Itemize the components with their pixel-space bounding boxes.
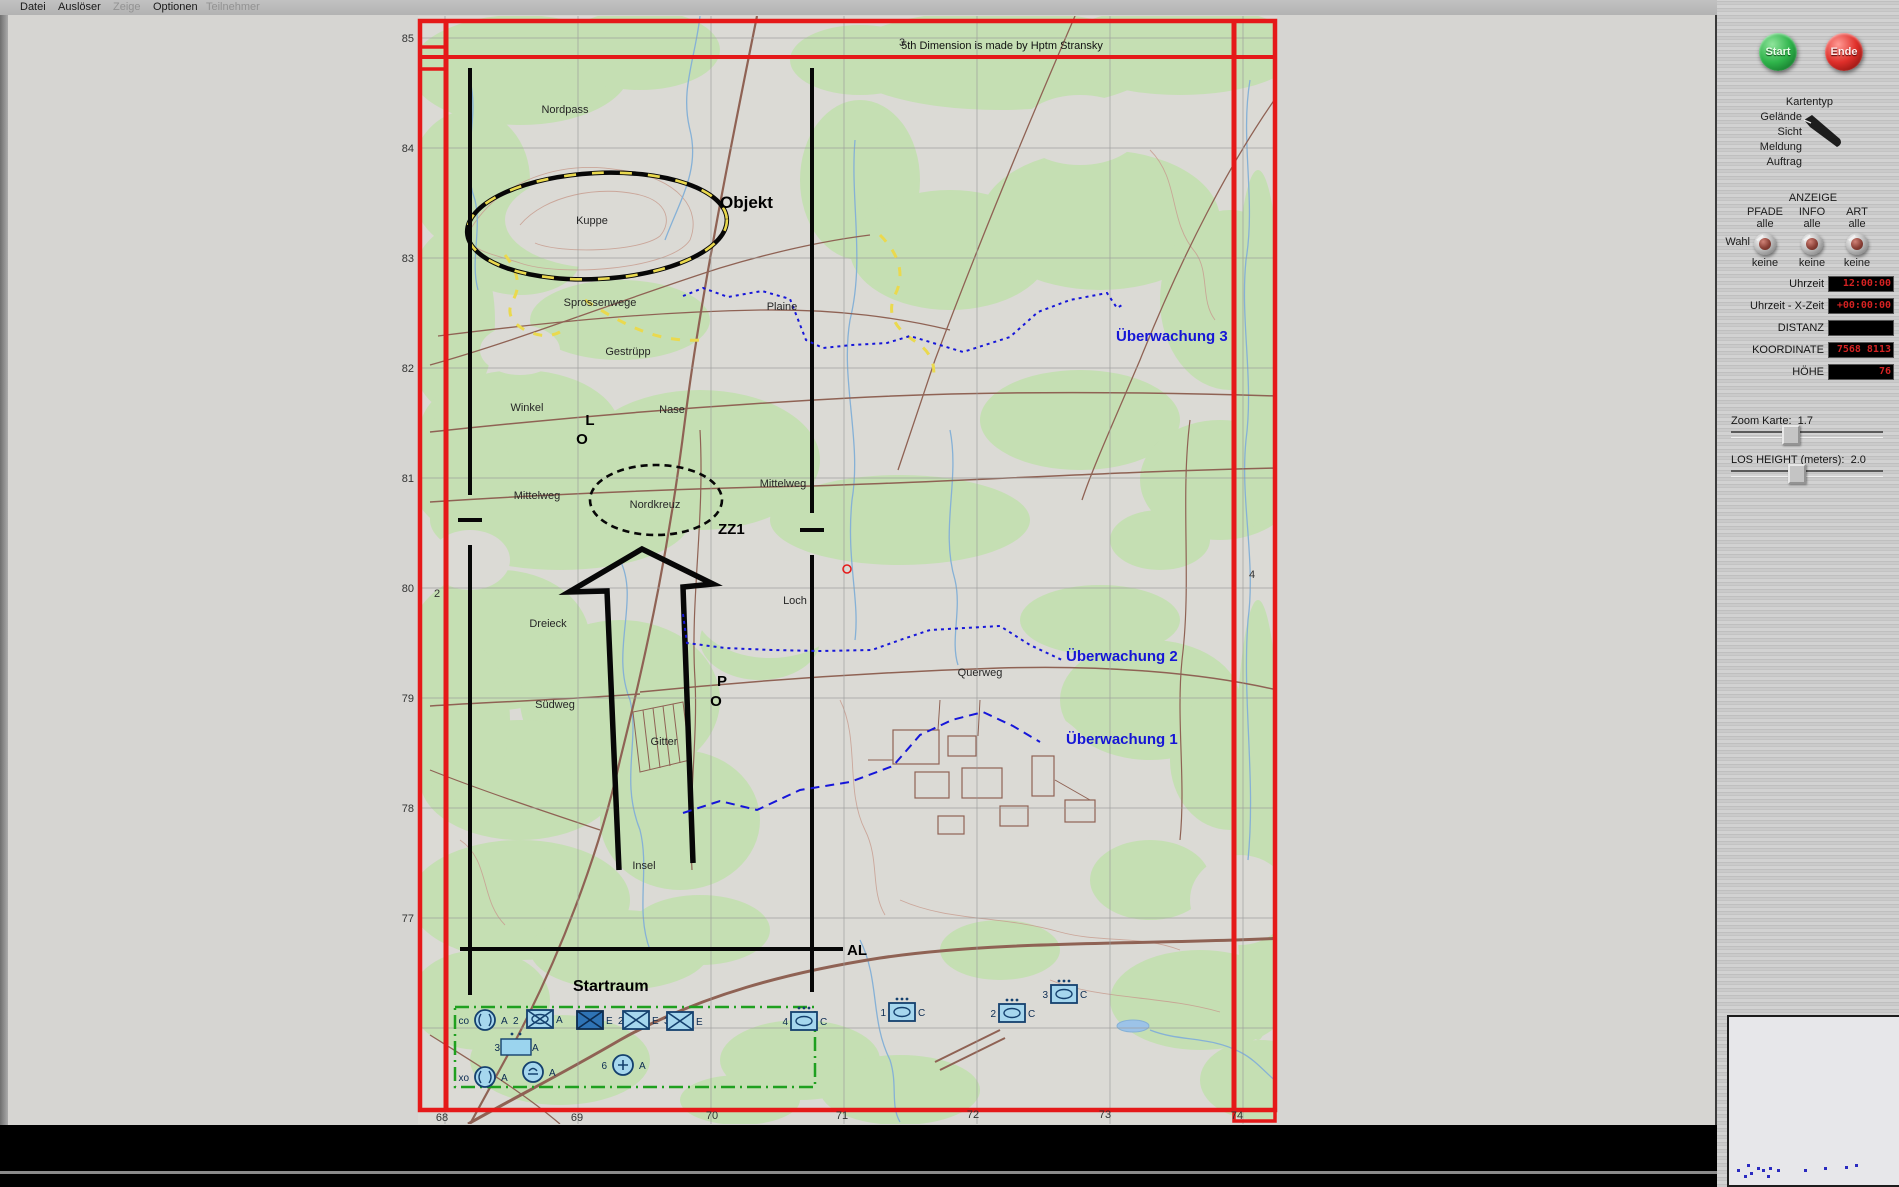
- info-knob[interactable]: [1801, 233, 1823, 255]
- map-label: Startraum: [573, 978, 649, 995]
- desktop: DateiAuslöserZeigeOptionenTeilnehmer: [0, 0, 1899, 1187]
- minimap-unit-dot: [1845, 1166, 1848, 1169]
- map-label: 72: [967, 1109, 979, 1121]
- art-knob-group: ART alle keine: [1832, 206, 1882, 269]
- map-label: 69: [571, 1112, 583, 1124]
- minimap-unit-dot: [1747, 1164, 1750, 1167]
- hoehe-row: HÖHE 76: [1717, 365, 1899, 379]
- unit-label: 3: [1042, 990, 1048, 1001]
- map-label: 82: [402, 363, 414, 375]
- art-keine-label: keine: [1844, 257, 1870, 269]
- distanz-label: DISTANZ: [1717, 322, 1824, 334]
- unit-label: C: [1028, 1009, 1035, 1020]
- map-label: L: [585, 412, 594, 429]
- map-label: P: [717, 673, 727, 690]
- map-label: 71: [836, 1110, 848, 1122]
- minimap-unit-dot: [1804, 1169, 1807, 1172]
- slider-section: Zoom Karte: 1.7 LOS HEIGHT (meters): 2.0: [1731, 415, 1887, 493]
- minimap-unit-dot: [1737, 1169, 1740, 1172]
- minimap-unit-dot: [1769, 1167, 1772, 1170]
- unit-label: 2: [513, 1016, 519, 1027]
- wahl-label: Wahl: [1725, 236, 1750, 248]
- minimap-unit-dot: [1824, 1167, 1827, 1170]
- menu-item-zeige: Zeige: [113, 1, 141, 13]
- unit-label: co: [458, 1016, 469, 1027]
- map-label: Mittelweg: [514, 490, 560, 502]
- minimap-unit-dot: [1750, 1172, 1753, 1175]
- distanz-display: [1828, 320, 1894, 336]
- koordinate-row: KOORDINATE 7568 8113: [1717, 343, 1899, 357]
- unit-label: A: [549, 1068, 556, 1079]
- info-label: INFO: [1787, 206, 1837, 218]
- map-label: Überwachung 1: [1066, 731, 1178, 748]
- map-label: Überwachung 3: [1116, 328, 1228, 345]
- map-label: Insel: [632, 860, 655, 872]
- unit-label: 2: [990, 1009, 996, 1020]
- lake: [1117, 1020, 1149, 1032]
- art-knob[interactable]: [1846, 233, 1868, 255]
- unit-label: C: [918, 1008, 925, 1019]
- unit-label: 1: [880, 1008, 886, 1019]
- anzeige-title: ANZEIGE: [1763, 192, 1863, 204]
- map-label: Überwachung 2: [1066, 648, 1178, 665]
- kartentyp-title: Kartentyp: [1786, 96, 1833, 108]
- map-label: 74: [1231, 1110, 1243, 1122]
- minimap-unit-dot: [1757, 1167, 1760, 1170]
- start-button[interactable]: Start: [1759, 33, 1797, 71]
- minimap-unit-dot: [1855, 1164, 1858, 1167]
- status-black-bar: [0, 1174, 1717, 1187]
- unit-label: C: [820, 1017, 827, 1028]
- map-label: Gestrüpp: [605, 346, 650, 358]
- zoom-karte-slider[interactable]: [1731, 431, 1883, 438]
- unit-label: A: [532, 1043, 539, 1054]
- pfade-label: PFADE: [1740, 206, 1790, 218]
- los-height-label: LOS HEIGHT (meters): 2.0: [1731, 454, 1887, 466]
- map-label: 3: [899, 37, 905, 49]
- art-label: ART: [1832, 206, 1882, 218]
- minimap-unit-dot: [1767, 1175, 1770, 1178]
- info-knob-group: INFO alle keine: [1787, 206, 1837, 269]
- pen-pointer-icon: [1802, 113, 1844, 155]
- tactical-map[interactable]: coA2AE2E3E4C3AxoAA6A1C2C3C 5th Dimension…: [0, 15, 1715, 1125]
- map-label: Nordkreuz: [630, 499, 681, 511]
- unit-label: 6: [601, 1061, 607, 1072]
- unit-label: xo: [458, 1073, 469, 1084]
- hoehe-label: HÖHE: [1717, 366, 1824, 378]
- menu-item-optionen[interactable]: Optionen: [153, 1, 198, 13]
- map-label: Dreieck: [529, 618, 567, 630]
- map-label: 2: [434, 588, 440, 600]
- map-label: Südweg: [535, 699, 575, 711]
- unit-label: A: [556, 1015, 563, 1026]
- menu-item-auslöser[interactable]: Auslöser: [58, 1, 101, 13]
- map-label: 4: [1249, 569, 1255, 581]
- kartentyp-option-meldung[interactable]: Meldung: [1760, 140, 1802, 155]
- map-label: 83: [402, 253, 414, 265]
- unit-label: C: [1080, 990, 1087, 1001]
- map-label: Sprossenwege: [564, 297, 637, 309]
- pfade-alle-label: alle: [1740, 218, 1790, 230]
- bottom-black-bar: [0, 1125, 1717, 1171]
- kartentyp-option-auftrag[interactable]: Auftrag: [1760, 155, 1802, 170]
- map-label: 77: [402, 913, 414, 925]
- xzeit-display: +00:00:00: [1828, 298, 1894, 314]
- uhrzeit-display: 12:00:00: [1828, 276, 1894, 292]
- los-height-slider-handle[interactable]: [1788, 464, 1806, 484]
- minimap-unit-dot: [1762, 1169, 1765, 1172]
- unit-label: A: [639, 1061, 646, 1072]
- minimap-unit-dot: [1744, 1175, 1747, 1178]
- control-sidebar: Start Ende Kartentyp Gelände Sicht Meldu…: [1717, 0, 1899, 1187]
- hoehe-display: 76: [1828, 364, 1894, 380]
- map-label: Nordpass: [541, 104, 589, 116]
- zoom-karte-slider-handle[interactable]: [1782, 425, 1800, 445]
- map-label: Kuppe: [576, 215, 608, 227]
- kartentyp-option-sicht[interactable]: Sicht: [1760, 125, 1802, 140]
- map-label: O: [710, 693, 722, 710]
- overview-minimap[interactable]: [1727, 1015, 1899, 1187]
- unit-label: A: [501, 1073, 508, 1084]
- los-height-slider[interactable]: [1731, 470, 1883, 477]
- menu-item-teilnehmer: Teilnehmer: [206, 1, 260, 13]
- map-label: Objekt: [720, 193, 773, 212]
- unit-label: 3: [494, 1043, 500, 1054]
- unit-label: E: [606, 1016, 613, 1027]
- zoom-karte-label: Zoom Karte: 1.7: [1731, 415, 1887, 427]
- menu-bar: DateiAuslöserZeigeOptionenTeilnehmer: [0, 0, 1717, 16]
- map-label: 5th Dimension is made by Hptm Stransky: [901, 40, 1103, 52]
- map-label: Nase: [659, 404, 685, 416]
- digital-displays: Uhrzeit 12:00:00 Uhrzeit - X-Zeit +00:00…: [1717, 277, 1899, 387]
- art-alle-label: alle: [1832, 218, 1882, 230]
- unit-label: E: [696, 1017, 703, 1028]
- map-label: 84: [402, 143, 414, 155]
- end-button[interactable]: Ende: [1825, 33, 1863, 71]
- map-label: 73: [1099, 1109, 1111, 1121]
- info-alle-label: alle: [1787, 218, 1837, 230]
- map-label: Winkel: [510, 402, 543, 414]
- xzeit-label: Uhrzeit - X-Zeit: [1717, 300, 1824, 312]
- menu-item-datei[interactable]: Datei: [20, 1, 46, 13]
- map-label: 70: [706, 1110, 718, 1122]
- map-label: Loch: [783, 595, 807, 607]
- minimap-unit-dot: [1777, 1169, 1780, 1172]
- unit-label: A: [501, 1016, 508, 1027]
- los-height-value: 2.0: [1851, 454, 1866, 466]
- map-label: 79: [402, 693, 414, 705]
- map-label: 78: [402, 803, 414, 815]
- map-label: Plaine: [767, 301, 798, 313]
- pfade-keine-label: keine: [1752, 257, 1778, 269]
- map-label: 85: [402, 33, 414, 45]
- koordinate-label: KOORDINATE: [1717, 344, 1824, 356]
- distanz-row: DISTANZ: [1717, 321, 1899, 335]
- uhrzeit-row: Uhrzeit 12:00:00: [1717, 277, 1899, 291]
- map-label: ZZ1: [718, 521, 745, 538]
- map-label: O: [576, 431, 588, 448]
- map-label: Gitter: [651, 736, 678, 748]
- kartentyp-option-gelaende[interactable]: Gelände: [1760, 110, 1802, 125]
- map-label: AL: [847, 942, 867, 959]
- unit-label: E: [652, 1016, 659, 1027]
- map-label: 68: [436, 1112, 448, 1124]
- kartentyp-options: Gelände Sicht Meldung Auftrag: [1760, 110, 1802, 170]
- map-label: 80: [402, 583, 414, 595]
- info-keine-label: keine: [1799, 257, 1825, 269]
- koordinate-display: 7568 8113: [1828, 342, 1894, 358]
- map-canvas[interactable]: coA2AE2E3E4C3AxoAA6A1C2C3C 5th Dimension…: [0, 15, 1717, 1125]
- uhrzeit-label: Uhrzeit: [1717, 278, 1824, 290]
- map-label: Querweg: [958, 667, 1003, 679]
- xzeit-row: Uhrzeit - X-Zeit +00:00:00: [1717, 299, 1899, 313]
- pfade-knob[interactable]: [1754, 233, 1776, 255]
- unit-label: 4: [782, 1017, 788, 1028]
- map-label: Mittelweg: [760, 478, 806, 490]
- map-label: 81: [402, 473, 414, 485]
